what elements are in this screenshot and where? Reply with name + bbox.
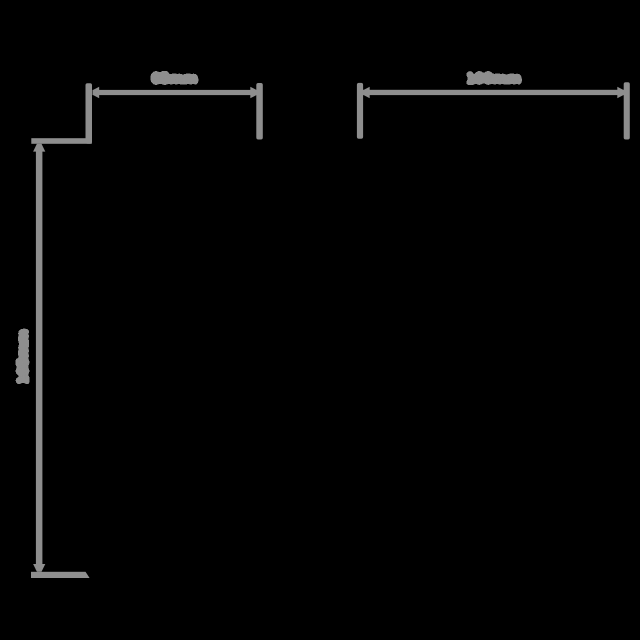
svg-text:100mm: 100mm (466, 71, 521, 88)
svg-text:65mm: 65mm (151, 71, 197, 88)
svg-text:165mm: 165mm (15, 329, 32, 384)
